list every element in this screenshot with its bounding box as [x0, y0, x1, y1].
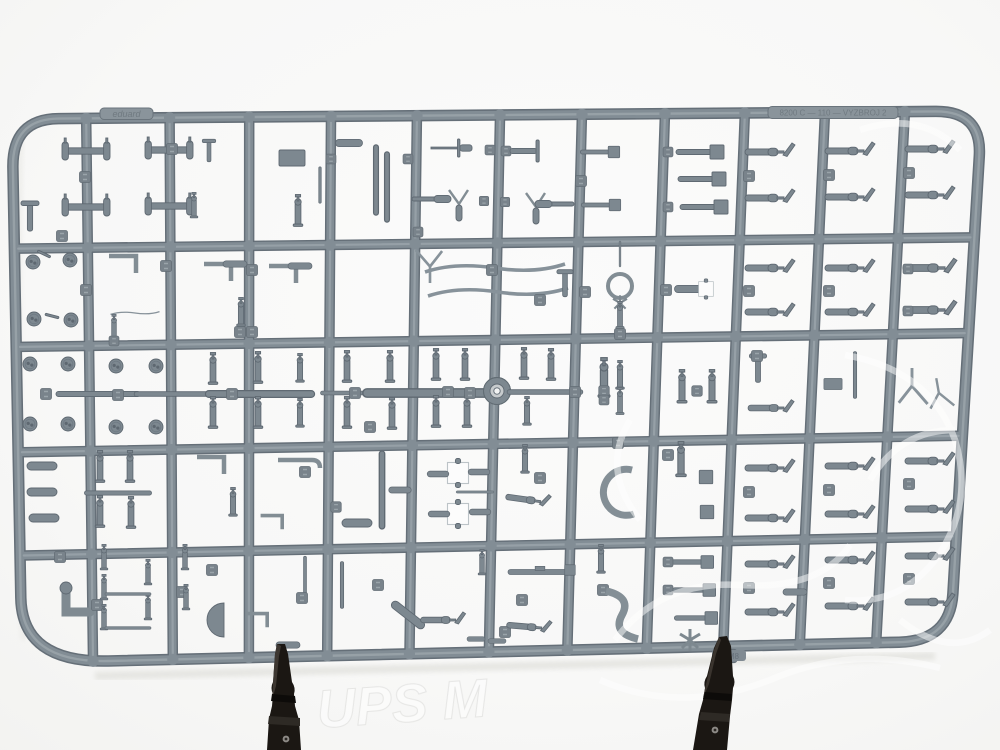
- svg-text:eduard: eduard: [112, 109, 141, 119]
- svg-text:8200 C — 110 — VYZBROJ 2: 8200 C — 110 — VYZBROJ 2: [779, 109, 887, 118]
- svg-text:UPS M: UPS M: [315, 668, 491, 740]
